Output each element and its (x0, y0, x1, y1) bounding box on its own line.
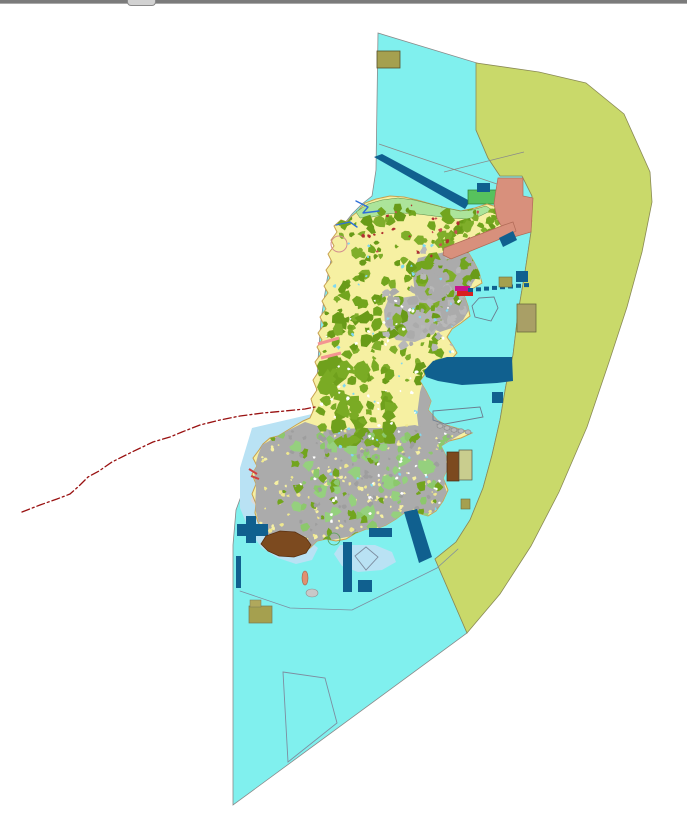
green-parcel-rect (468, 190, 497, 204)
islet-chain (437, 424, 443, 428)
navy-coast-rect (369, 528, 392, 537)
navy-bar-south (343, 542, 352, 592)
salmon-islet (302, 571, 308, 585)
navy-square-south (358, 580, 372, 592)
islet-chain (444, 426, 450, 430)
navy-parcel-square (516, 271, 528, 282)
magenta-flag (455, 286, 470, 291)
islet-chain (458, 429, 464, 433)
navy-thin-bar-west (236, 556, 241, 588)
map-viewer-window: { "meta": { "label": "land-use-zoning-ma… (0, 0, 687, 821)
navy-parcel-rect-east (492, 392, 503, 403)
khaki-parcel-rect-top (377, 51, 400, 68)
islet-chain (451, 428, 457, 432)
navy-parcel-rect (477, 183, 490, 192)
khaki-parcel-square-ne (499, 277, 512, 287)
brown-parcel-rect (447, 452, 459, 481)
map-canvas[interactable] (0, 0, 687, 821)
khaki-parcel-rect (459, 450, 472, 480)
khaki-parcel-big-east (517, 304, 536, 332)
navy-cross-vertical (246, 516, 256, 543)
khaki-parcel-square-se (461, 499, 470, 509)
khaki-parcel-rect-bottom (249, 606, 272, 623)
gray-islet (306, 589, 318, 597)
islet-chain (465, 430, 471, 434)
khaki-parcel-tab-bottom (250, 600, 261, 607)
